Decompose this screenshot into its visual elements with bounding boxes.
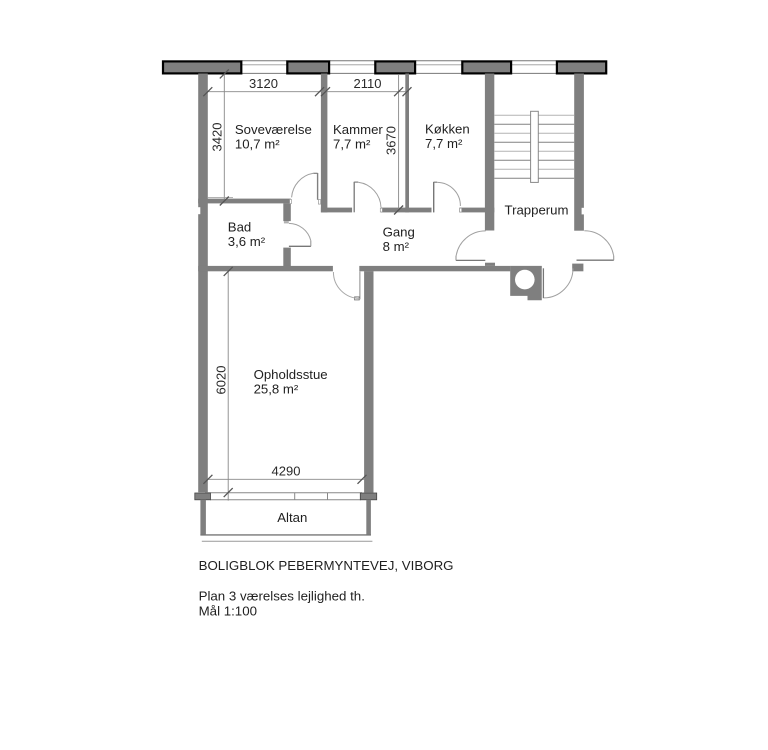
svg-text:Altan: Altan <box>277 510 307 525</box>
svg-text:BOLIGBLOK PEBERMYNTEVEJ, VIBOR: BOLIGBLOK PEBERMYNTEVEJ, VIBORG <box>199 558 454 573</box>
svg-text:Kammer: Kammer <box>333 122 383 137</box>
svg-text:Mål 1:100: Mål 1:100 <box>199 604 257 619</box>
svg-text:7,7 m²: 7,7 m² <box>333 137 371 152</box>
svg-text:3670: 3670 <box>383 126 398 155</box>
svg-text:6020: 6020 <box>214 366 229 395</box>
svg-text:3420: 3420 <box>209 123 224 152</box>
svg-text:Opholdsstue: Opholdsstue <box>254 367 328 382</box>
svg-text:Gang: Gang <box>383 225 415 240</box>
svg-text:3,6 m²: 3,6 m² <box>228 234 266 249</box>
svg-text:7,7 m²: 7,7 m² <box>425 136 463 151</box>
svg-text:Plan 3 værelses lejlighed th.: Plan 3 værelses lejlighed th. <box>199 589 365 604</box>
svg-text:4290: 4290 <box>272 464 301 479</box>
svg-text:25,8 m²: 25,8 m² <box>254 382 299 397</box>
svg-text:8 m²: 8 m² <box>383 239 410 254</box>
svg-text:Køkken: Køkken <box>425 122 470 137</box>
svg-text:3120: 3120 <box>249 76 278 91</box>
svg-text:Bad: Bad <box>228 220 251 235</box>
svg-text:Trapperum: Trapperum <box>505 203 569 218</box>
svg-text:Soveværelse: Soveværelse <box>235 122 312 137</box>
svg-text:10,7 m²: 10,7 m² <box>235 137 280 152</box>
svg-text:2110: 2110 <box>354 76 382 91</box>
